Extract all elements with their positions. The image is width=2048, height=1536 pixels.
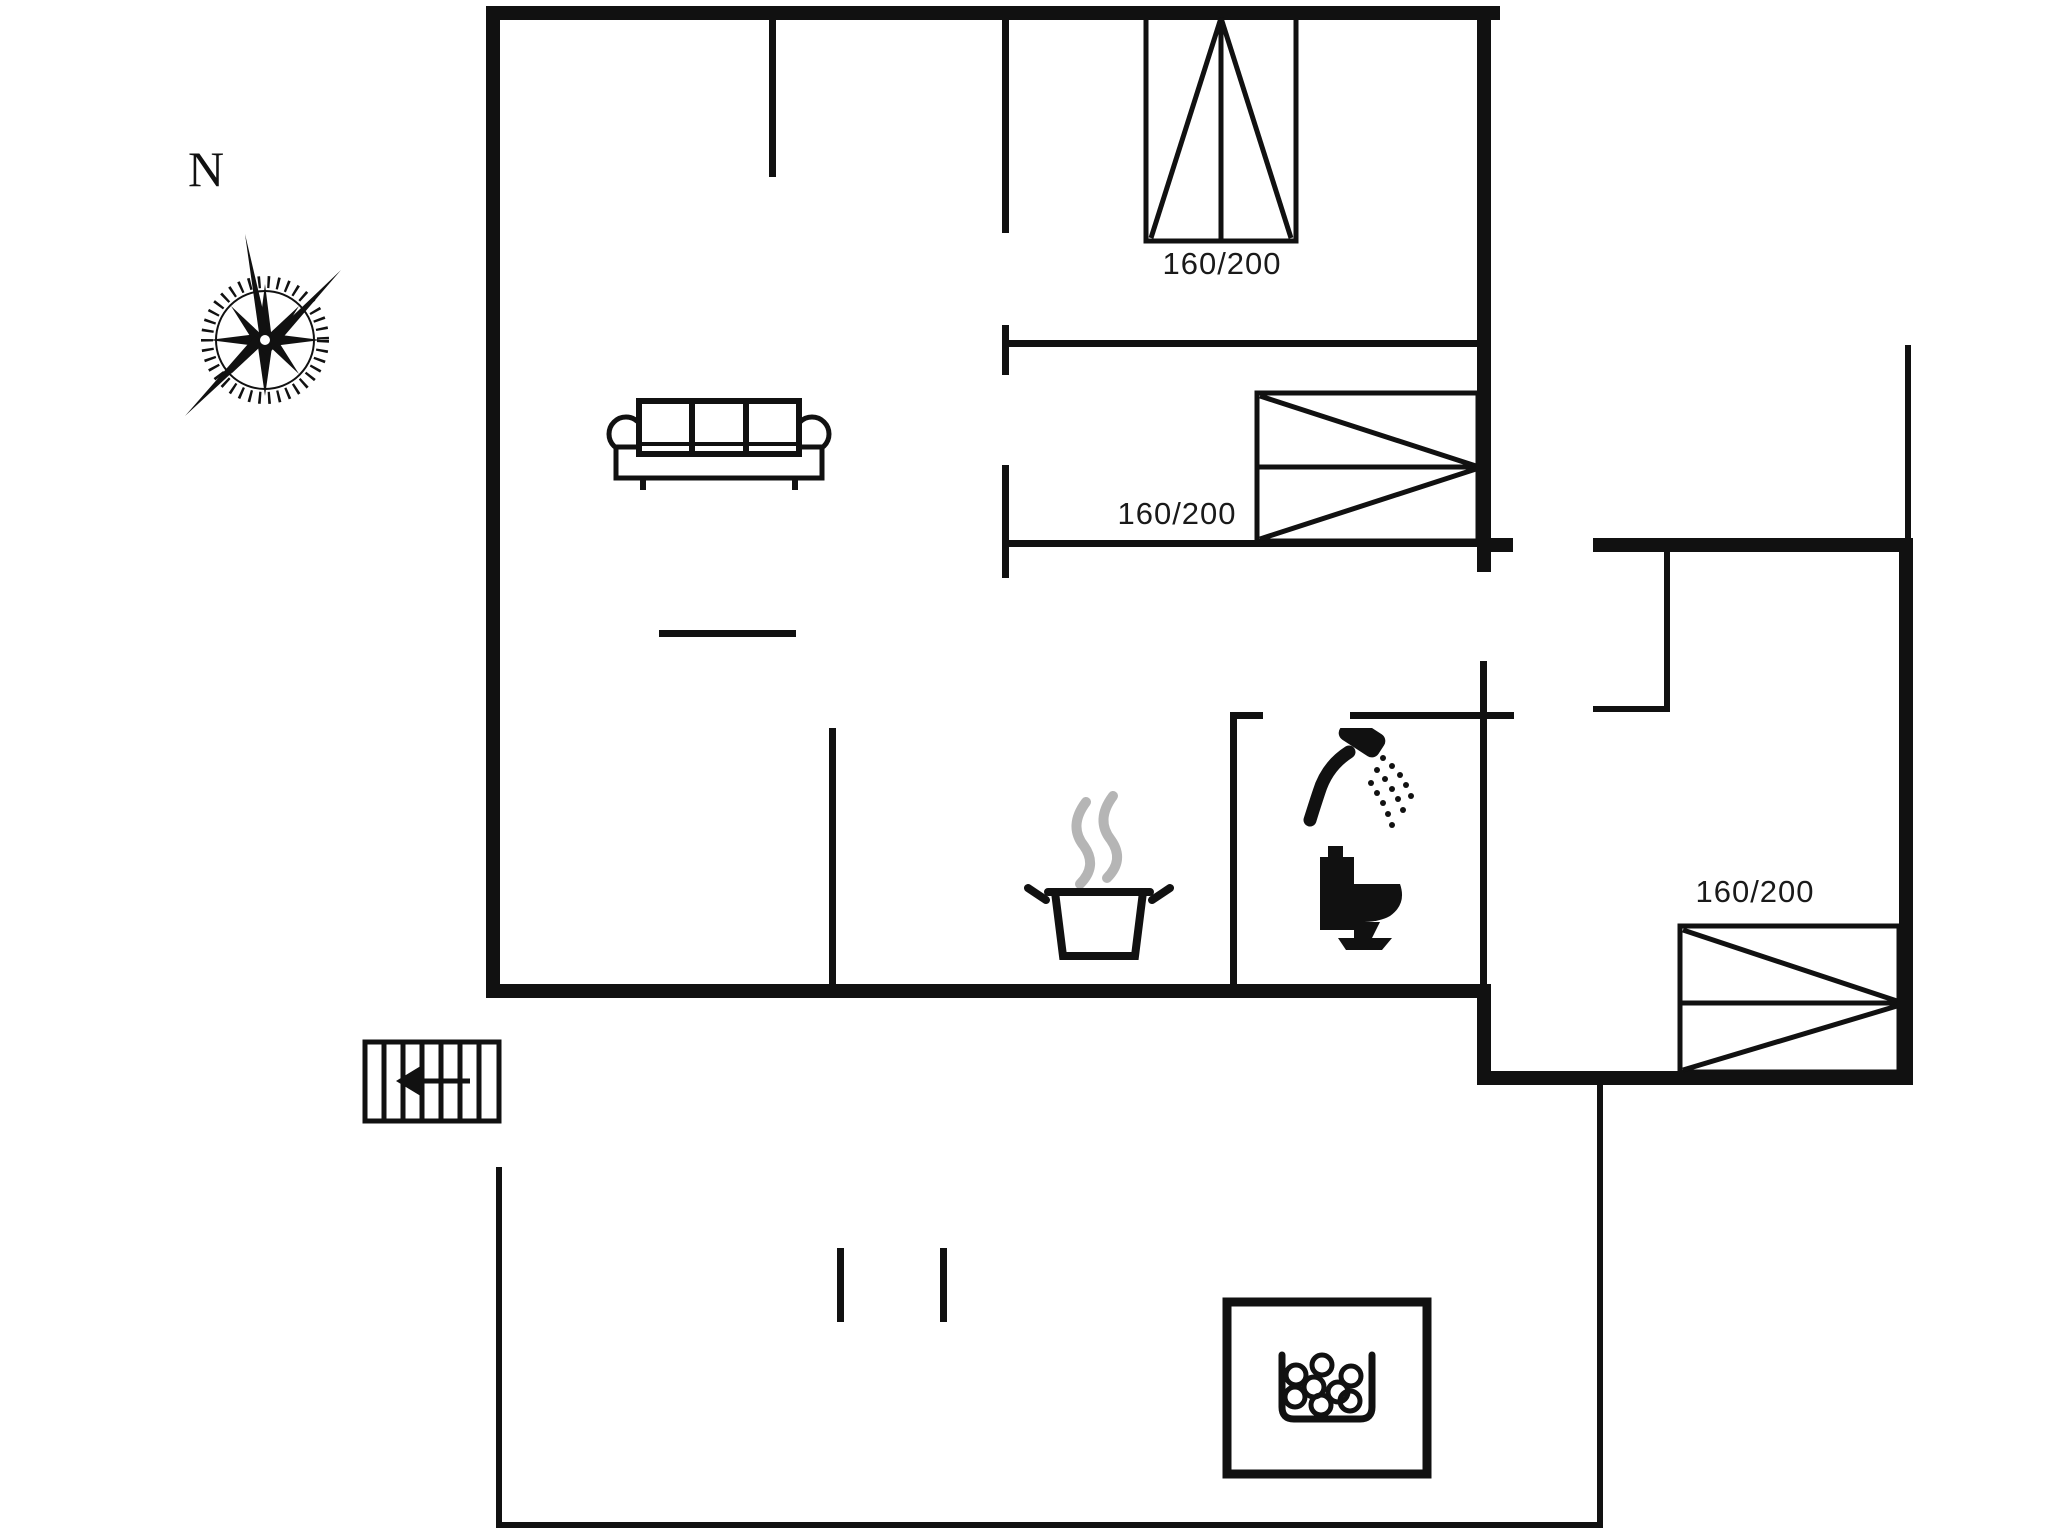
- bed-size-label-middle: 160/200: [1097, 496, 1257, 532]
- compass-north-label: N: [188, 140, 224, 198]
- wall-bedroom1-south: [1005, 340, 1483, 347]
- wall-hall-upper: [1002, 20, 1009, 233]
- wall-hall-mid: [1002, 325, 1009, 375]
- wall-terrace-left: [496, 1167, 502, 1528]
- hot-tub-icon: [1222, 1297, 1432, 1479]
- toilet-icon: [1312, 844, 1414, 954]
- terrace-post-right: [940, 1248, 947, 1322]
- wall-bath-left: [1230, 712, 1237, 986]
- compass-rose-icon: [145, 218, 385, 453]
- cooking-pot-icon: [1018, 788, 1178, 966]
- wall-kitchen-vertical: [829, 728, 836, 986]
- double-bed-middle-icon: [1254, 390, 1483, 545]
- wall-closet-vertical: [1664, 552, 1670, 712]
- wall-terrace-right: [1597, 1085, 1603, 1528]
- double-bed-top-icon: [1143, 12, 1299, 244]
- wall-annex-top: [1593, 538, 1913, 552]
- wall-bottom-main: [486, 984, 1491, 998]
- bed-size-label-top: 160/200: [1137, 246, 1307, 282]
- wall-terrace-edge: [1905, 345, 1911, 540]
- wall-annex-inner: [1480, 661, 1487, 986]
- shower-icon: [1293, 728, 1419, 846]
- wall-left: [486, 6, 500, 998]
- wall-bath-top-left: [1230, 712, 1263, 719]
- sofa-icon: [603, 394, 835, 494]
- double-bed-annex-icon: [1677, 923, 1903, 1075]
- wall-hall-lower: [1002, 465, 1009, 578]
- floor-plan: N: [0, 0, 2048, 1536]
- stairs-icon: [362, 1039, 502, 1124]
- wall-terrace-bottom: [496, 1522, 1603, 1528]
- wall-bath-top-right: [1350, 712, 1514, 719]
- stairs-direction-arrow: [396, 1064, 424, 1098]
- wall-entry-stub: [769, 20, 776, 177]
- wall-top: [486, 6, 1500, 20]
- terrace-post-left: [837, 1248, 844, 1322]
- bed-size-label-annex: 160/200: [1675, 874, 1835, 910]
- wall-annex-left: [1477, 984, 1491, 1085]
- wall-kitchen-horizontal: [659, 630, 796, 637]
- wall-closet-horizontal: [1593, 706, 1670, 712]
